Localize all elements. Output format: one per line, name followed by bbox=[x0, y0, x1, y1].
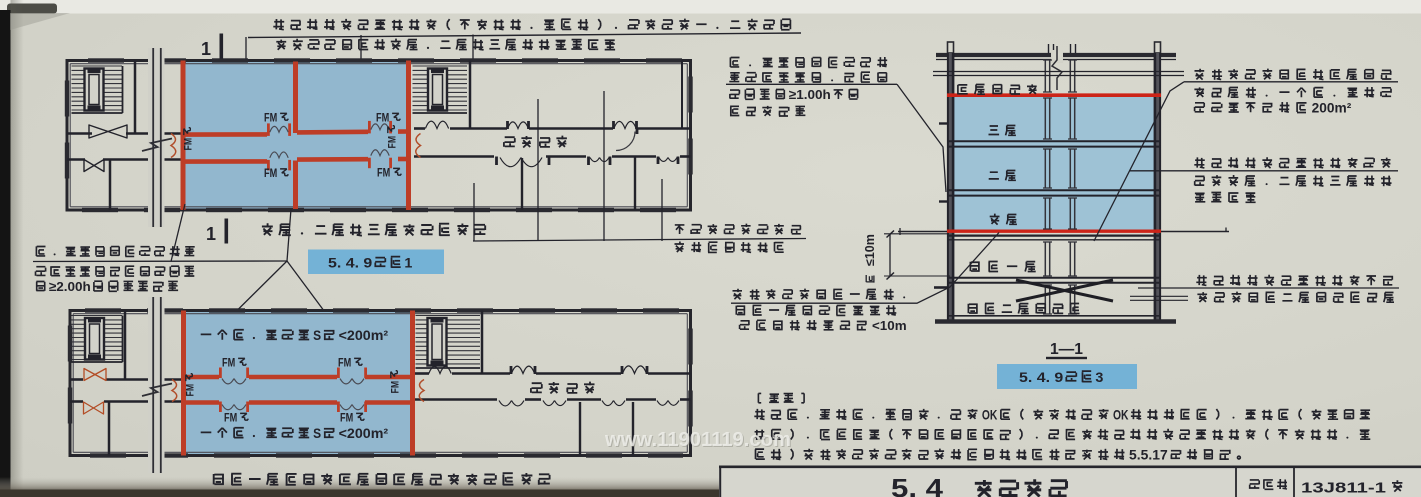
svg-text:FM: FM bbox=[224, 413, 237, 425]
svg-text:FM: FM bbox=[390, 381, 402, 394]
svg-text:≥1.00h: ≥1.00h bbox=[789, 87, 831, 102]
svg-text:5.5.17: 5.5.17 bbox=[1129, 447, 1168, 462]
svg-text:≥2.00h: ≥2.00h bbox=[49, 279, 91, 294]
svg-text:FM: FM bbox=[185, 384, 197, 397]
svg-text:FM: FM bbox=[183, 138, 195, 151]
svg-text:www.11901119.com: www.11901119.com bbox=[604, 428, 791, 451]
svg-text:S: S bbox=[313, 425, 321, 441]
svg-text:FM: FM bbox=[377, 168, 390, 180]
svg-text:FM: FM bbox=[376, 113, 389, 125]
svg-text:5. 4. 9: 5. 4. 9 bbox=[1019, 369, 1064, 385]
svg-text:OK: OK bbox=[982, 407, 998, 422]
svg-text:13J811-1: 13J811-1 bbox=[1301, 481, 1386, 497]
svg-text:FM: FM bbox=[222, 358, 235, 370]
svg-text:<10m: <10m bbox=[872, 318, 907, 333]
svg-text:FM: FM bbox=[338, 358, 351, 370]
svg-text:OK: OK bbox=[1113, 407, 1129, 422]
svg-text:1: 1 bbox=[201, 39, 211, 59]
svg-text:3: 3 bbox=[1095, 369, 1103, 385]
svg-text:1: 1 bbox=[206, 224, 216, 244]
svg-text:1: 1 bbox=[404, 254, 412, 270]
svg-text:FM: FM bbox=[264, 113, 277, 125]
svg-text:≤10m: ≤10m bbox=[863, 234, 877, 266]
svg-text:FM: FM bbox=[340, 413, 353, 425]
svg-text:FM: FM bbox=[264, 168, 277, 180]
svg-text:<200m²: <200m² bbox=[339, 425, 389, 441]
svg-text:FM: FM bbox=[387, 136, 399, 149]
svg-text:1—1: 1—1 bbox=[1050, 341, 1083, 358]
svg-text:S: S bbox=[313, 327, 321, 343]
svg-text:5. 4: 5. 4 bbox=[891, 473, 944, 497]
svg-text:<200m²: <200m² bbox=[339, 327, 389, 343]
svg-text:200m²: 200m² bbox=[1312, 100, 1352, 115]
svg-text:5. 4. 9: 5. 4. 9 bbox=[328, 254, 373, 270]
